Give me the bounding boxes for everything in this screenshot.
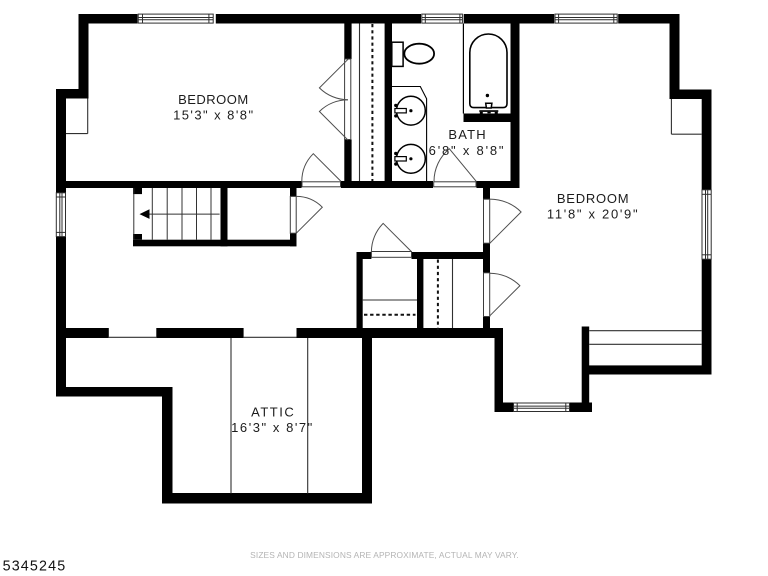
svg-text:BEDROOM: BEDROOM <box>178 92 249 107</box>
svg-text:5345245: 5345245 <box>3 558 67 574</box>
svg-text:16'3" x 8'7": 16'3" x 8'7" <box>231 420 314 435</box>
svg-text:BATH: BATH <box>448 127 487 142</box>
svg-text:15'3" x 8'8": 15'3" x 8'8" <box>173 108 254 123</box>
svg-text:ATTIC: ATTIC <box>251 405 295 420</box>
svg-text:SIZES AND DIMENSIONS ARE APPRO: SIZES AND DIMENSIONS ARE APPROXIMATE, AC… <box>250 550 519 560</box>
svg-text:6'8" x 8'8": 6'8" x 8'8" <box>429 143 506 158</box>
svg-text:BEDROOM: BEDROOM <box>557 191 629 206</box>
svg-text:11'8" x 20'9": 11'8" x 20'9" <box>547 207 639 222</box>
